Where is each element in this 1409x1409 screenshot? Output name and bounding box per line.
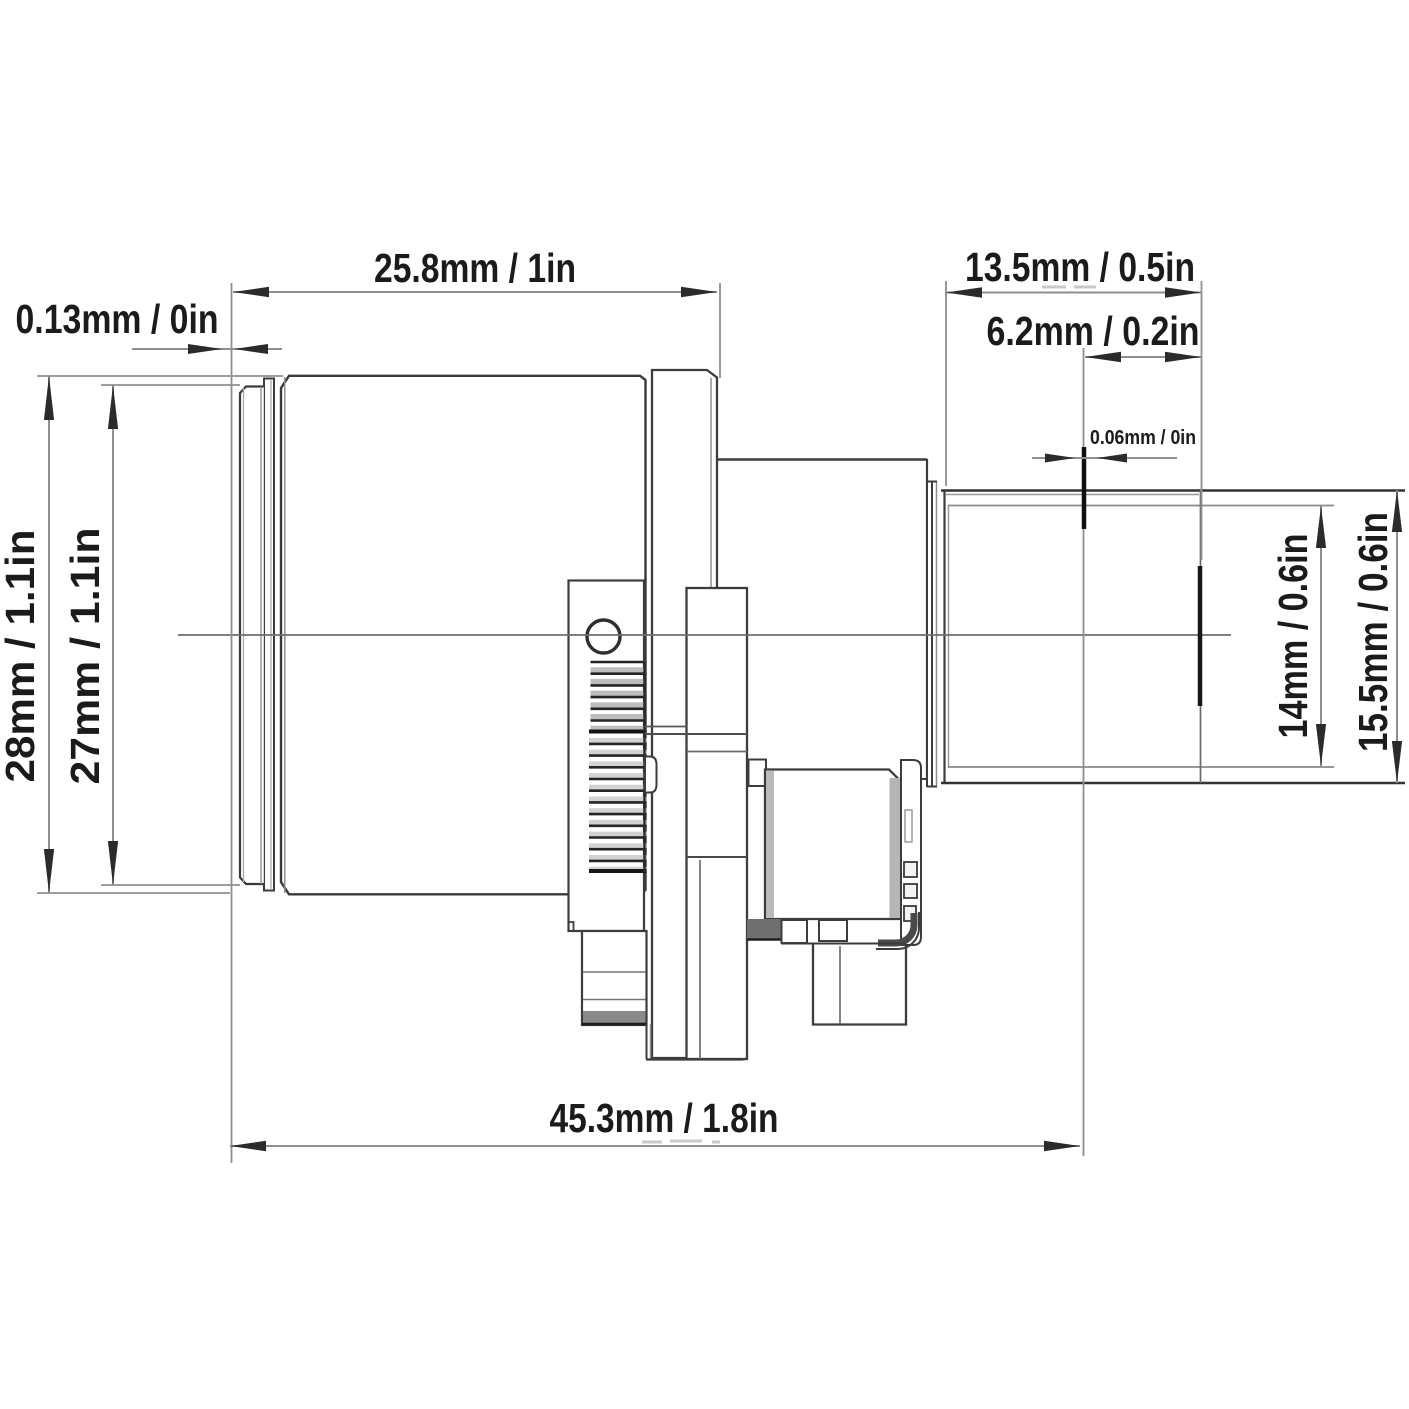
svg-text:6.2mm / 0.2in: 6.2mm / 0.2in (987, 308, 1200, 354)
svg-text:15.5mm / 0.6in: 15.5mm / 0.6in (1350, 512, 1396, 752)
svg-text:25.8mm / 1in: 25.8mm / 1in (374, 245, 576, 291)
svg-text:13.5mm / 0.5in: 13.5mm / 0.5in (965, 244, 1195, 290)
svg-text:28mm / 1.1in: 28mm / 1.1in (0, 530, 43, 783)
svg-text:45.3mm / 1.8in: 45.3mm / 1.8in (550, 1095, 779, 1141)
svg-text:0.06mm / 0in: 0.06mm / 0in (1090, 427, 1196, 449)
svg-text:14mm / 0.6in: 14mm / 0.6in (1270, 534, 1316, 739)
svg-text:0.13mm / 0in: 0.13mm / 0in (16, 296, 219, 342)
svg-text:27mm / 1.1in: 27mm / 1.1in (62, 528, 108, 785)
